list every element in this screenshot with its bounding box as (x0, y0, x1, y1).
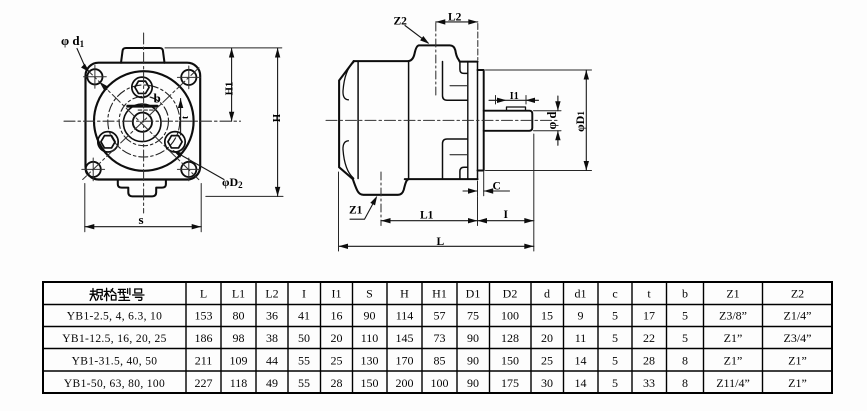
svg-text:153: 153 (195, 309, 213, 323)
svg-text:55: 55 (298, 354, 310, 368)
svg-text:170: 170 (396, 354, 414, 368)
svg-text:50: 50 (298, 331, 310, 345)
svg-text:90: 90 (364, 309, 376, 323)
svg-text:41: 41 (298, 309, 310, 323)
svg-text:Z1: Z1 (349, 205, 363, 217)
svg-text:110: 110 (361, 331, 379, 345)
svg-text:200: 200 (396, 376, 414, 390)
svg-text:d: d (544, 287, 550, 301)
svg-text:85: 85 (434, 354, 446, 368)
svg-text:17: 17 (643, 309, 655, 323)
svg-text:145: 145 (396, 331, 414, 345)
svg-text:Z1”: Z1” (724, 331, 743, 345)
svg-text:5: 5 (612, 331, 618, 345)
svg-text:S: S (366, 287, 373, 301)
svg-text:L: L (200, 287, 207, 301)
svg-text:14: 14 (575, 354, 587, 368)
svg-text:Z2: Z2 (394, 15, 408, 27)
svg-text:8: 8 (682, 354, 688, 368)
svg-text:5: 5 (612, 354, 618, 368)
svg-text:211: 211 (195, 354, 213, 368)
svg-text:57: 57 (434, 309, 446, 323)
svg-text:130: 130 (361, 354, 379, 368)
svg-text:H: H (400, 287, 409, 301)
svg-text:L: L (437, 236, 445, 248)
svg-text:109: 109 (230, 354, 248, 368)
svg-text:d1: d1 (575, 287, 587, 301)
svg-text:175: 175 (501, 376, 519, 390)
svg-text:L1: L1 (420, 209, 434, 221)
svg-text:t: t (180, 116, 190, 119)
svg-text:55: 55 (298, 376, 310, 390)
svg-text:15: 15 (541, 309, 553, 323)
svg-text:Z3/8”: Z3/8” (719, 309, 747, 323)
svg-text:227: 227 (195, 376, 213, 390)
svg-text:38: 38 (266, 331, 278, 345)
svg-text:28: 28 (331, 376, 343, 390)
svg-text:5: 5 (612, 309, 618, 323)
svg-text:8: 8 (682, 376, 688, 390)
svg-text:90: 90 (467, 331, 479, 345)
svg-text:36: 36 (266, 309, 278, 323)
svg-text:c: c (612, 287, 617, 301)
svg-text:I: I (504, 209, 509, 221)
svg-text:5: 5 (682, 309, 688, 323)
svg-text:φD1: φD1 (573, 111, 587, 132)
svg-text:Z1/4”: Z1/4” (784, 309, 812, 323)
svg-text:118: 118 (230, 376, 248, 390)
svg-text:H1: H1 (225, 82, 236, 95)
svg-text:90: 90 (467, 354, 479, 368)
svg-text:33: 33 (643, 376, 655, 390)
svg-text:80: 80 (233, 309, 245, 323)
svg-text:s: s (139, 212, 144, 227)
svg-text:25: 25 (331, 354, 343, 368)
svg-text:44: 44 (266, 354, 278, 368)
svg-text:22: 22 (643, 331, 655, 345)
svg-text:9: 9 (578, 309, 584, 323)
svg-text:14: 14 (575, 376, 587, 390)
svg-text:φ d: φ d (545, 112, 559, 130)
svg-text:5: 5 (612, 376, 618, 390)
svg-text:30: 30 (541, 376, 553, 390)
svg-text:L2: L2 (448, 12, 462, 24)
svg-text:Z1”: Z1” (788, 354, 807, 368)
svg-text:b: b (682, 287, 688, 301)
svg-text:186: 186 (195, 331, 213, 345)
svg-text:Z1”: Z1” (724, 354, 743, 368)
svg-text:Z3/4”: Z3/4” (784, 331, 812, 345)
svg-text:Z1”: Z1” (788, 376, 807, 390)
svg-text:28: 28 (643, 354, 655, 368)
svg-text:114: 114 (396, 309, 414, 323)
svg-text:20: 20 (331, 331, 343, 345)
svg-text:I1: I1 (332, 287, 342, 301)
svg-text:150: 150 (501, 354, 519, 368)
svg-text:YB1-50, 63, 80, 100: YB1-50, 63, 80, 100 (64, 378, 165, 390)
svg-text:16: 16 (331, 309, 343, 323)
svg-text:H: H (272, 114, 283, 122)
svg-text:YB1-12.5, 16, 20, 25: YB1-12.5, 16, 20, 25 (62, 333, 166, 345)
svg-text:D2: D2 (503, 287, 518, 301)
svg-text:I1: I1 (510, 91, 519, 102)
svg-text:L2: L2 (265, 287, 278, 301)
svg-text:Z1: Z1 (726, 287, 739, 301)
svg-text:D1: D1 (466, 287, 481, 301)
svg-text:YB1-31.5, 40, 50: YB1-31.5, 40, 50 (72, 356, 158, 368)
svg-text:98: 98 (233, 331, 245, 345)
svg-text:90: 90 (467, 376, 479, 390)
svg-text:128: 128 (501, 331, 519, 345)
svg-text:Z11/4”: Z11/4” (716, 376, 750, 390)
svg-text:11: 11 (575, 331, 587, 345)
svg-text:YB1-2.5, 4, 6.3, 10: YB1-2.5, 4, 6.3, 10 (67, 311, 162, 323)
svg-text:100: 100 (501, 309, 519, 323)
svg-text:75: 75 (467, 309, 479, 323)
svg-text:49: 49 (266, 376, 278, 390)
svg-text:H1: H1 (432, 287, 447, 301)
svg-text:Z2: Z2 (791, 287, 804, 301)
svg-text:L1: L1 (232, 287, 245, 301)
svg-text:25: 25 (541, 354, 553, 368)
svg-text:C: C (493, 180, 501, 192)
svg-text:5: 5 (682, 331, 688, 345)
svg-text:b: b (154, 91, 161, 106)
svg-text:73: 73 (434, 331, 446, 345)
svg-text:100: 100 (431, 376, 449, 390)
svg-text:I: I (302, 287, 306, 301)
svg-text:20: 20 (541, 331, 553, 345)
svg-text:150: 150 (361, 376, 379, 390)
